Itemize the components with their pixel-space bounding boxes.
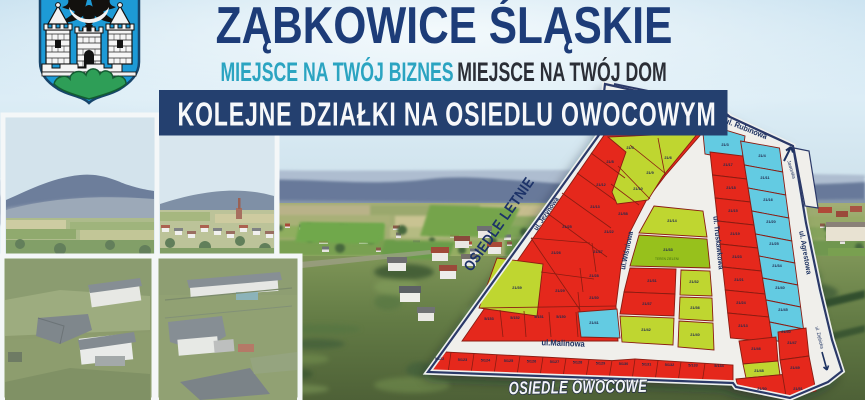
svg-text:21/28: 21/28 (589, 273, 599, 278)
svg-text:21/30: 21/30 (589, 295, 598, 300)
svg-text:21/10: 21/10 (633, 186, 642, 191)
svg-text:21/17: 21/17 (723, 162, 732, 167)
svg-text:5/150: 5/150 (556, 314, 565, 319)
svg-text:5/125: 5/125 (504, 358, 514, 363)
svg-text:21/15: 21/15 (728, 208, 738, 213)
svg-text:21/23: 21/23 (732, 254, 742, 259)
svg-text:21/58: 21/58 (618, 211, 628, 216)
svg-text:21/6: 21/6 (664, 155, 672, 160)
svg-text:21/34: 21/34 (772, 263, 782, 268)
svg-text:21/22: 21/22 (604, 229, 614, 234)
svg-text:21/5: 21/5 (626, 145, 634, 150)
svg-text:21/42: 21/42 (641, 327, 651, 332)
svg-text:21/12: 21/12 (596, 182, 606, 187)
svg-text:21/49: 21/49 (790, 365, 800, 370)
svg-text:21/48: 21/48 (754, 368, 764, 373)
svg-text:5/134: 5/134 (714, 363, 724, 368)
svg-text:5/123: 5/123 (458, 357, 468, 362)
svg-text:5/151: 5/151 (534, 314, 544, 319)
svg-text:21/36: 21/36 (690, 305, 700, 310)
svg-text:21/46: 21/46 (751, 346, 761, 351)
svg-text:21/13: 21/13 (738, 323, 748, 328)
svg-text:MIEJSCE NA TWÓJ DOM: MIEJSCE NA TWÓJ DOM (457, 56, 667, 87)
svg-text:21/11: 21/11 (760, 175, 770, 180)
svg-text:21/21: 21/21 (734, 277, 744, 282)
svg-text:21/29: 21/29 (555, 288, 565, 293)
svg-text:5/132: 5/132 (665, 362, 675, 367)
svg-text:5/126: 5/126 (527, 358, 537, 363)
svg-text:5/152: 5/152 (510, 315, 520, 320)
svg-text:21/40: 21/40 (690, 332, 699, 337)
svg-text:5/127: 5/127 (550, 359, 559, 364)
svg-text:21/16: 21/16 (763, 197, 773, 202)
svg-text:21/27: 21/27 (593, 249, 602, 254)
svg-text:5/153: 5/153 (484, 316, 494, 321)
svg-text:21/32: 21/32 (689, 279, 699, 284)
svg-text:5/130: 5/130 (619, 361, 628, 366)
svg-text:TEREN ZIELENI: TEREN ZIELENI (655, 257, 679, 261)
svg-text:21/40: 21/40 (775, 285, 784, 290)
svg-text:21/33: 21/33 (663, 247, 673, 252)
svg-text:21/50: 21/50 (757, 386, 766, 391)
svg-text:21/4: 21/4 (758, 153, 766, 158)
svg-text:5/122: 5/122 (435, 356, 445, 361)
svg-text:5/128: 5/128 (573, 360, 583, 365)
svg-text:21/8: 21/8 (606, 159, 614, 164)
svg-text:21/26: 21/26 (551, 250, 561, 255)
svg-text:21/14: 21/14 (667, 218, 677, 223)
svg-text:OSIEDLE OWOCOWE: OSIEDLE OWOCOWE (508, 377, 647, 399)
svg-text:5/129: 5/129 (596, 360, 606, 365)
svg-text:21/25: 21/25 (769, 241, 779, 246)
svg-text:21/37: 21/37 (642, 301, 651, 306)
svg-text:ZĄBKOWICE ŚLĄSKIE: ZĄBKOWICE ŚLĄSKIE (216, 0, 673, 55)
svg-text:21/41: 21/41 (589, 320, 599, 325)
svg-text:21/3: 21/3 (721, 142, 729, 147)
svg-text:21/39: 21/39 (512, 285, 522, 290)
svg-text:5/133: 5/133 (688, 362, 698, 367)
svg-text:21/20: 21/20 (766, 219, 775, 224)
svg-text:5/124: 5/124 (481, 357, 491, 362)
svg-text:21/18: 21/18 (726, 185, 736, 190)
svg-text:MIEJSCE NA TWÓJ BIZNES: MIEJSCE NA TWÓJ BIZNES (220, 56, 453, 87)
svg-text:KOLEJNE DZIAŁKI NA OSIEDLU: KOLEJNE DZIAŁKI NA OSIEDLU OWOCOWYM (177, 97, 716, 134)
svg-text:21/19: 21/19 (730, 231, 740, 236)
svg-text:5/131: 5/131 (642, 361, 652, 366)
svg-text:21/51: 21/51 (793, 386, 803, 391)
svg-text:21/24: 21/24 (736, 300, 746, 305)
svg-text:ul.Malinowa: ul.Malinowa (541, 338, 585, 349)
svg-text:21/13: 21/13 (590, 204, 600, 209)
svg-text:21/50: 21/50 (781, 329, 790, 334)
svg-text:21/9: 21/9 (646, 170, 654, 175)
svg-text:21/25: 21/25 (562, 224, 572, 229)
svg-text:21/31: 21/31 (647, 278, 657, 283)
svg-text:21/45: 21/45 (778, 307, 788, 312)
svg-text:21/47: 21/47 (787, 340, 796, 345)
